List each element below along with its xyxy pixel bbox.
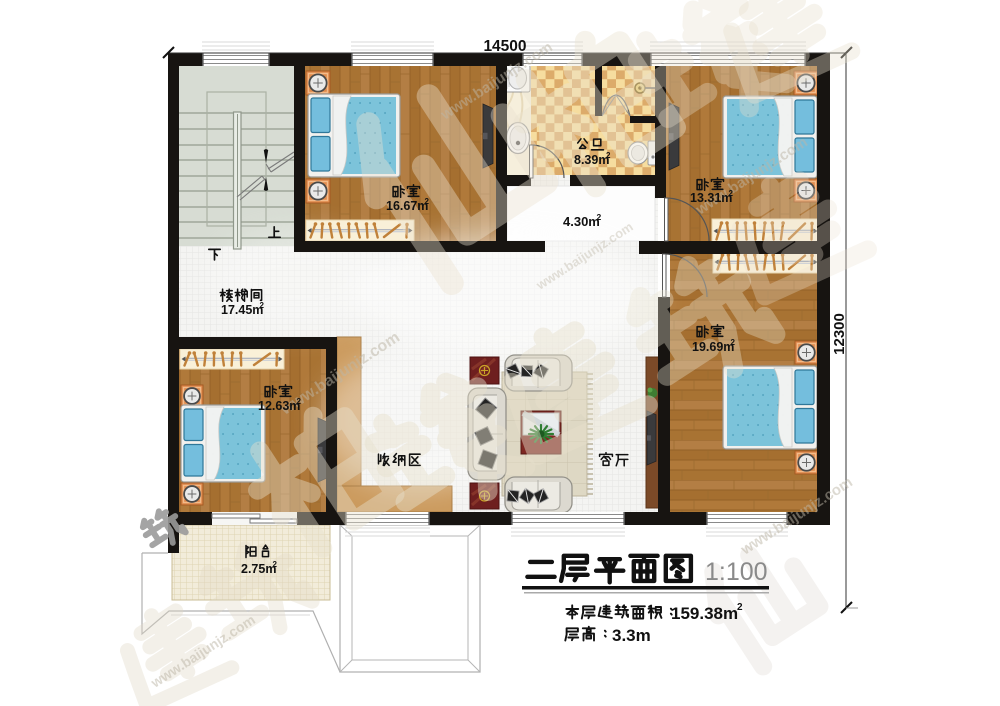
svg-text:2: 2 <box>260 301 265 310</box>
svg-text:2: 2 <box>737 602 743 613</box>
svg-text:14500: 14500 <box>483 38 526 55</box>
svg-text:8.39m: 8.39m <box>574 153 609 167</box>
svg-text:4.30m: 4.30m <box>563 214 600 229</box>
svg-text:159.38m: 159.38m <box>671 604 738 623</box>
svg-text:1:100: 1:100 <box>705 558 768 586</box>
svg-text:2: 2 <box>425 197 430 206</box>
svg-text:2: 2 <box>731 338 736 347</box>
svg-text:3.3m: 3.3m <box>612 626 651 645</box>
svg-text:2: 2 <box>273 560 278 569</box>
svg-text:16.67m: 16.67m <box>386 199 428 213</box>
svg-text:2: 2 <box>729 189 734 198</box>
svg-text:12.63m: 12.63m <box>258 399 300 413</box>
svg-text:12300: 12300 <box>831 313 848 355</box>
svg-text:19.69m: 19.69m <box>692 340 734 354</box>
svg-text:17.45m: 17.45m <box>221 303 263 317</box>
svg-text:2: 2 <box>606 151 611 160</box>
svg-text:2.75m: 2.75m <box>241 562 276 576</box>
svg-text:2: 2 <box>297 397 302 406</box>
svg-text:13.31m: 13.31m <box>690 191 732 205</box>
svg-text:2: 2 <box>597 212 602 222</box>
